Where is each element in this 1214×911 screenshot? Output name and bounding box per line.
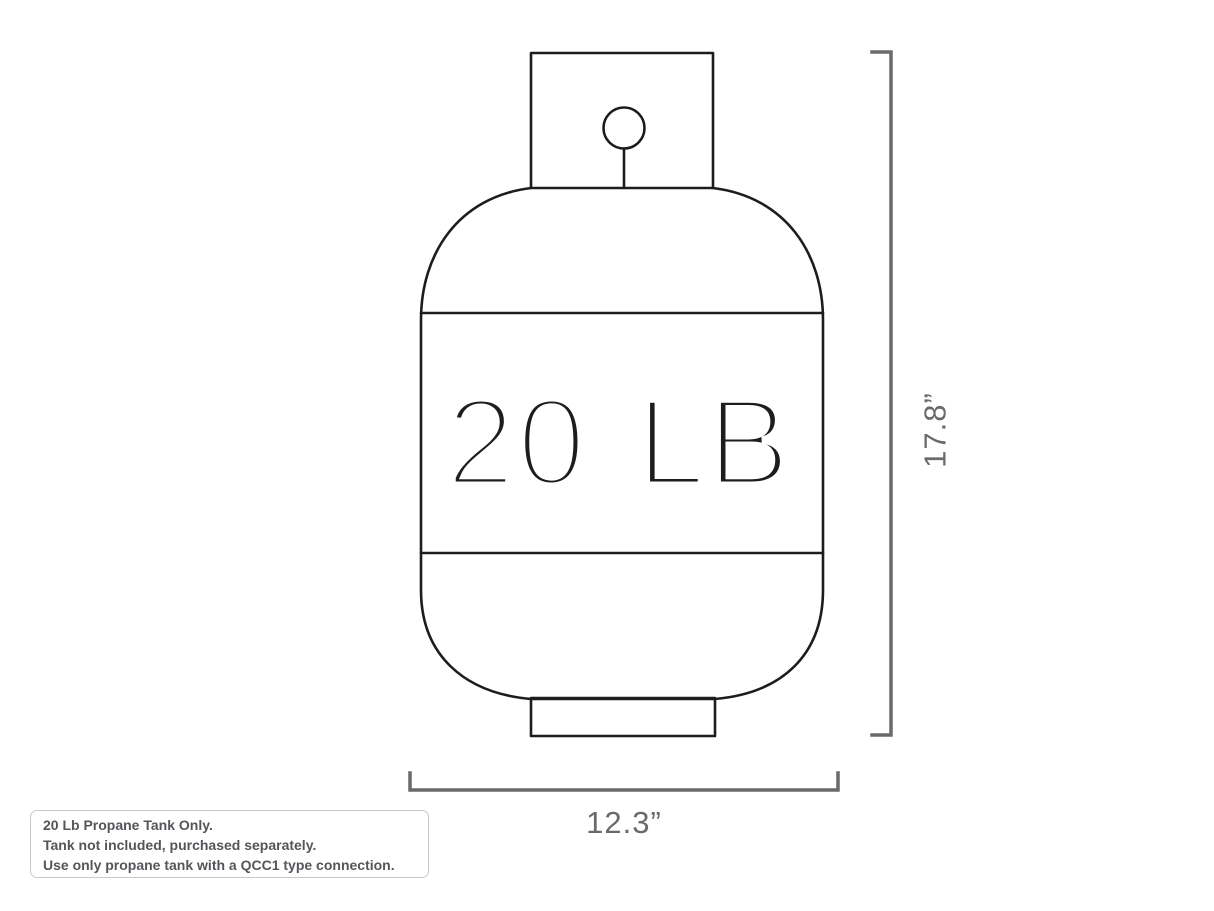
- valve-knob: [604, 108, 645, 149]
- foot-ring-outline: [531, 698, 715, 736]
- note-box: 20 Lb Propane Tank Only. Tank not includ…: [30, 810, 429, 878]
- height-dimension-label: 17.8”: [918, 392, 953, 468]
- tank-drawing: 20 LB 17.8” 12.3”: [0, 0, 1214, 911]
- note-line-2: Tank not included, purchased separately.: [43, 835, 416, 855]
- note-line-3: Use only propane tank with a QCC1 type c…: [43, 855, 416, 875]
- tank-capacity-label: 20 LB: [446, 374, 792, 512]
- width-dimension-label: 12.3”: [586, 805, 662, 840]
- propane-tank-diagram: 20 LB 17.8” 12.3” 20 Lb Propane Tank Onl…: [0, 0, 1214, 911]
- height-dimension-line: [872, 52, 891, 735]
- note-line-1: 20 Lb Propane Tank Only.: [43, 815, 416, 835]
- valve-collar-outline: [531, 53, 713, 188]
- width-dimension-line: [410, 773, 838, 790]
